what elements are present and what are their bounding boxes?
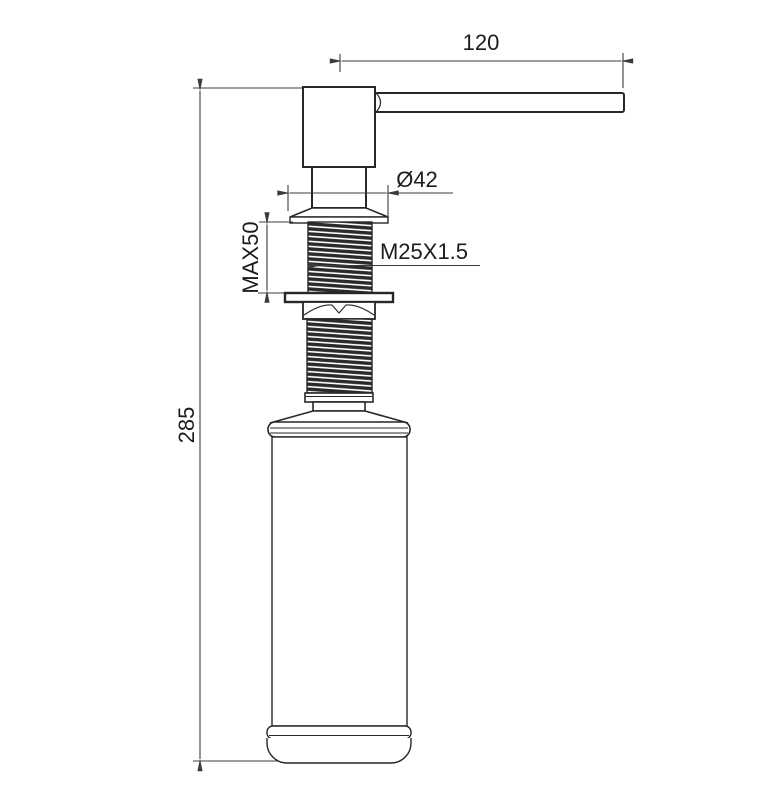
flange-cone xyxy=(290,208,388,217)
thread-upper xyxy=(308,222,372,293)
bottle-collar xyxy=(305,393,373,402)
thread-spec-label: M25X1.5 xyxy=(380,239,468,264)
flange-diameter-label: Ø42 xyxy=(396,167,438,192)
hex-nut xyxy=(303,302,375,319)
dimension-spout-length xyxy=(340,53,623,88)
drawing-page: 285 120 Ø42 MAX50 xyxy=(0,0,757,800)
spout xyxy=(375,93,624,112)
pump-head xyxy=(303,87,375,167)
bottle-bottom-cap xyxy=(267,738,411,763)
dimension-max-deck-thickness xyxy=(258,222,293,293)
bottle-body xyxy=(272,437,407,726)
mounting-washer xyxy=(285,293,393,302)
bottle-shoulder-bead xyxy=(268,422,410,437)
thread-lower xyxy=(307,319,372,393)
soap-dispenser-technical-drawing: 285 120 Ø42 MAX50 xyxy=(0,0,757,800)
bottle-bottom-bead xyxy=(267,726,411,739)
overall-height-label: 285 xyxy=(174,407,199,444)
max-deck-thickness-label: MAX50 xyxy=(238,221,263,293)
head-neck xyxy=(312,167,366,208)
spout-length-label: 120 xyxy=(463,30,500,55)
bottle-neck xyxy=(313,402,365,411)
